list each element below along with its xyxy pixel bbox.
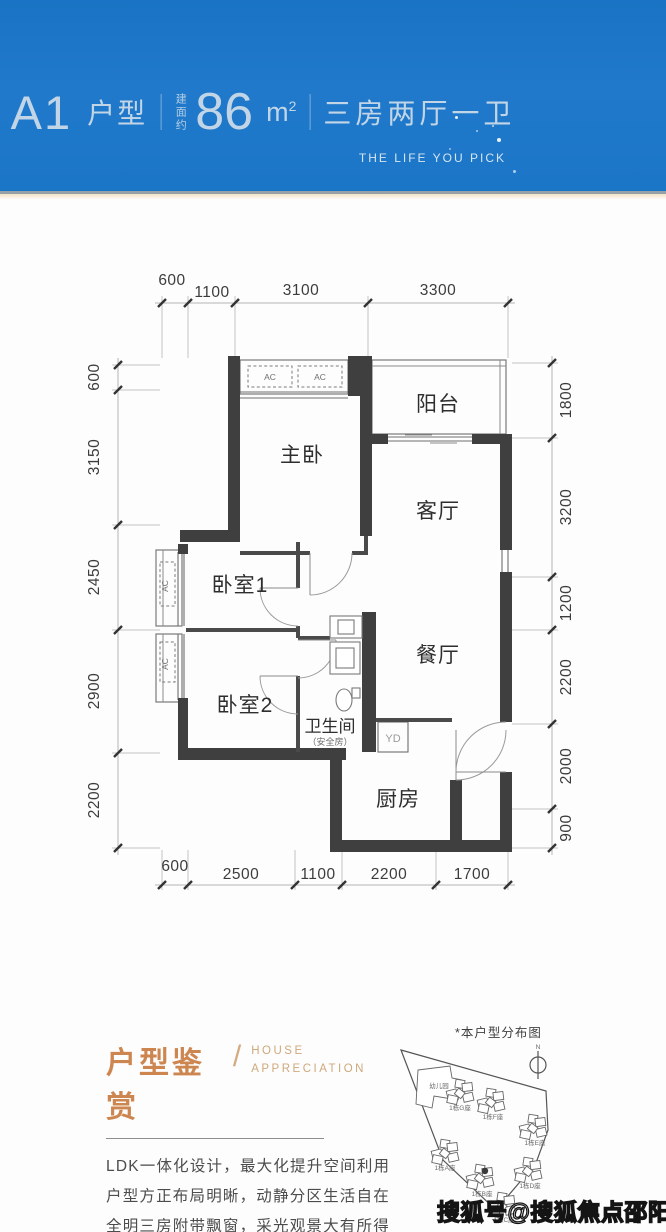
dim-left-0: 600 bbox=[86, 363, 103, 390]
dim-left-2: 2450 bbox=[86, 559, 103, 595]
dim-bottom-3: 2200 bbox=[371, 866, 407, 883]
appreciation-title-en-2: APPRECIATION bbox=[251, 1063, 366, 1075]
layout-text: 三房两厅一卫 bbox=[323, 92, 515, 132]
room-bath: 卫生间 bbox=[305, 717, 356, 736]
appreciation-line-2: 户型方正布局明晰，动静分区生活自在 bbox=[106, 1182, 366, 1212]
room-dining: 餐厅 bbox=[416, 644, 460, 667]
dim-bottom-2: 1100 bbox=[300, 866, 335, 883]
appreciation-section: 户型鉴赏 / HOUSE APPRECIATION LDK一体化设计，最大化提升… bbox=[106, 1038, 366, 1232]
dim-right-1: 3200 bbox=[558, 489, 575, 525]
star-dot bbox=[476, 130, 478, 132]
room-bed2: 卧室2 bbox=[217, 694, 274, 717]
brand-tagline: THE LIFE YOU PICK bbox=[359, 151, 506, 165]
dim-top-0: 600 bbox=[158, 272, 185, 289]
room-master: 主卧 bbox=[280, 444, 324, 467]
dim-bottom-1: 2500 bbox=[223, 866, 259, 883]
appreciation-rule bbox=[106, 1138, 324, 1139]
area-unit: m2 bbox=[266, 97, 296, 128]
label-ac-2: AC bbox=[314, 372, 326, 382]
label-yd: YD bbox=[385, 733, 400, 745]
dim-left-4: 2200 bbox=[86, 782, 103, 818]
kindergarten-label: 幼儿园 bbox=[429, 1081, 449, 1090]
room-living: 客厅 bbox=[416, 500, 460, 523]
dim-bottom-0: 600 bbox=[161, 858, 188, 875]
appreciation-title-en-1: HOUSE bbox=[251, 1045, 304, 1057]
room-bed1: 卧室1 bbox=[212, 574, 269, 597]
appreciation-heading: 户型鉴赏 / HOUSE APPRECIATION bbox=[106, 1038, 366, 1126]
star-dot bbox=[497, 138, 501, 142]
appreciation-line-3: 全明三房附带飘窗，采光观景大有所得 bbox=[106, 1212, 366, 1232]
unit-code: A1 bbox=[11, 85, 73, 140]
dim-right-4: 2000 bbox=[558, 748, 575, 784]
appreciation-divider: / bbox=[233, 1040, 241, 1074]
header-banner: A1 户型 建面约 86 m2 三房两厅一卫 THE LIFE YOU PICK bbox=[0, 0, 666, 191]
divider-bar bbox=[160, 94, 161, 130]
divider-bar bbox=[309, 94, 310, 130]
floorplan: 600 1100 3100 3300 600 2500 1100 2200 17… bbox=[0, 260, 666, 910]
label-ac-3: AC bbox=[160, 580, 170, 592]
compass-north: N bbox=[536, 1044, 541, 1051]
thick-walls bbox=[178, 356, 512, 852]
unit-location-marker bbox=[482, 1168, 488, 1174]
room-balcony: 阳台 bbox=[416, 393, 460, 416]
label-ac-4: AC bbox=[160, 658, 170, 670]
unit-suffix: 户型 bbox=[87, 92, 147, 132]
page: A1 户型 建面约 86 m2 三房两厅一卫 THE LIFE YOU PICK bbox=[0, 0, 666, 1232]
building-label-5: 1栋D座 bbox=[519, 1181, 541, 1190]
building-label-3: 1栋A座 bbox=[435, 1163, 456, 1172]
appreciation-title-en: HOUSE APPRECIATION bbox=[251, 1038, 366, 1079]
building-label-2: 1栋E座 bbox=[525, 1138, 546, 1147]
dim-left-1: 3150 bbox=[86, 439, 103, 475]
area-unit-base: m bbox=[266, 97, 289, 127]
watermark: 搜狐号@搜狐焦点邵阳站 bbox=[437, 1193, 666, 1227]
building-label-1: 1栋F座 bbox=[483, 1112, 504, 1121]
appreciation-line-1: LDK一体化设计，最大化提升空间利用 bbox=[106, 1152, 366, 1182]
dim-right-2: 1200 bbox=[558, 585, 575, 621]
area-prefix: 建面约 bbox=[174, 93, 186, 132]
dim-right-3: 2200 bbox=[558, 659, 575, 695]
dim-top-3: 3300 bbox=[420, 282, 456, 299]
dim-right-5: 900 bbox=[558, 814, 575, 841]
room-kitchen: 厨房 bbox=[376, 788, 420, 811]
building-label-0: 1栋G座 bbox=[449, 1103, 471, 1112]
header-separator-tan bbox=[0, 194, 666, 200]
appreciation-body: LDK一体化设计，最大化提升空间利用 户型方正布局明晰，动静分区生活自在 全明三… bbox=[106, 1152, 366, 1232]
dim-left-3: 2900 bbox=[86, 673, 103, 709]
star-dot bbox=[455, 116, 458, 119]
star-dot bbox=[513, 170, 516, 173]
dim-top-2: 3100 bbox=[283, 282, 319, 299]
area-value: 86 bbox=[195, 82, 253, 142]
fixtures bbox=[330, 616, 362, 711]
label-ac-1: AC bbox=[264, 372, 276, 382]
dim-top-1: 1100 bbox=[194, 284, 229, 301]
dim-right-0: 1800 bbox=[558, 382, 575, 418]
compass: N bbox=[530, 1044, 546, 1079]
star-dot bbox=[492, 125, 494, 127]
unit-title: A1 户型 建面约 86 m2 三房两厅一卫 bbox=[11, 82, 516, 142]
appreciation-title-cn: 户型鉴赏 bbox=[106, 1038, 223, 1126]
room-bath-sub: （安全房） bbox=[307, 736, 352, 747]
dim-bottom-4: 1700 bbox=[454, 866, 490, 883]
area-unit-sup: 2 bbox=[289, 98, 297, 114]
star-dot bbox=[449, 148, 451, 150]
